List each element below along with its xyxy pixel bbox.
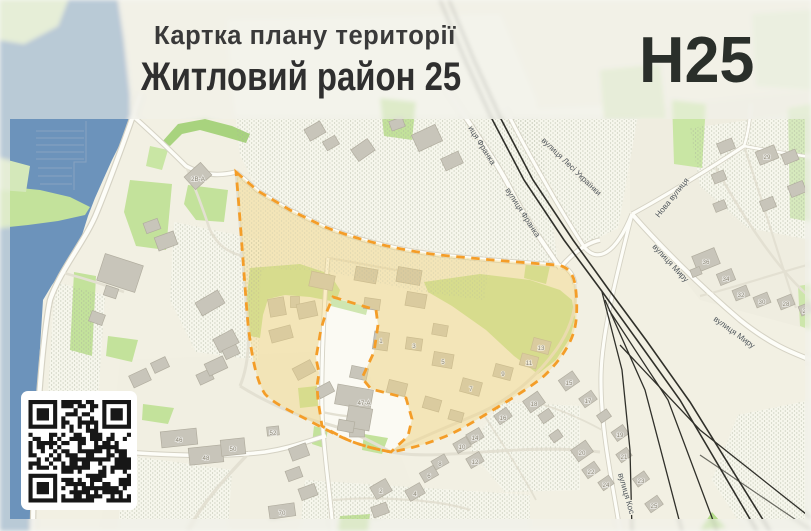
svg-text:50: 50 bbox=[230, 446, 237, 453]
svg-text:1: 1 bbox=[379, 338, 383, 345]
svg-text:5: 5 bbox=[441, 359, 445, 366]
svg-text:16: 16 bbox=[500, 415, 507, 422]
svg-text:18: 18 bbox=[531, 401, 538, 408]
svg-text:70: 70 bbox=[279, 510, 286, 517]
svg-text:10: 10 bbox=[459, 444, 466, 451]
svg-text:4: 4 bbox=[413, 491, 417, 498]
svg-text:6: 6 bbox=[427, 473, 431, 480]
svg-text:14: 14 bbox=[472, 435, 479, 442]
svg-text:32: 32 bbox=[738, 292, 745, 299]
svg-text:36: 36 bbox=[703, 259, 710, 266]
svg-text:21: 21 bbox=[621, 454, 628, 461]
svg-text:12: 12 bbox=[472, 459, 479, 466]
svg-text:15: 15 bbox=[566, 380, 573, 387]
svg-text:9: 9 bbox=[501, 371, 505, 378]
svg-text:3: 3 bbox=[412, 343, 416, 350]
svg-text:25: 25 bbox=[651, 503, 658, 510]
svg-text:29: 29 bbox=[764, 154, 771, 161]
svg-text:7: 7 bbox=[469, 386, 473, 393]
svg-text:13: 13 bbox=[538, 345, 545, 352]
svg-text:11: 11 bbox=[526, 360, 533, 367]
svg-text:22: 22 bbox=[588, 469, 595, 476]
svg-text:2: 2 bbox=[379, 488, 383, 495]
svg-text:34: 34 bbox=[723, 276, 730, 283]
svg-text:17: 17 bbox=[585, 398, 592, 405]
svg-text:24: 24 bbox=[603, 482, 610, 489]
svg-text:30: 30 bbox=[759, 299, 766, 306]
svg-text:28: 28 bbox=[783, 301, 790, 308]
svg-text:46: 46 bbox=[176, 437, 183, 444]
svg-text:52: 52 bbox=[270, 430, 277, 437]
svg-text:48: 48 bbox=[203, 455, 210, 462]
svg-text:20: 20 bbox=[579, 450, 586, 457]
svg-text:8: 8 bbox=[438, 461, 442, 468]
svg-text:19: 19 bbox=[617, 432, 624, 439]
svg-text:23: 23 bbox=[638, 478, 645, 485]
svg-text:2В-А: 2В-А bbox=[191, 176, 206, 183]
svg-text:47-А: 47-А bbox=[357, 400, 371, 407]
